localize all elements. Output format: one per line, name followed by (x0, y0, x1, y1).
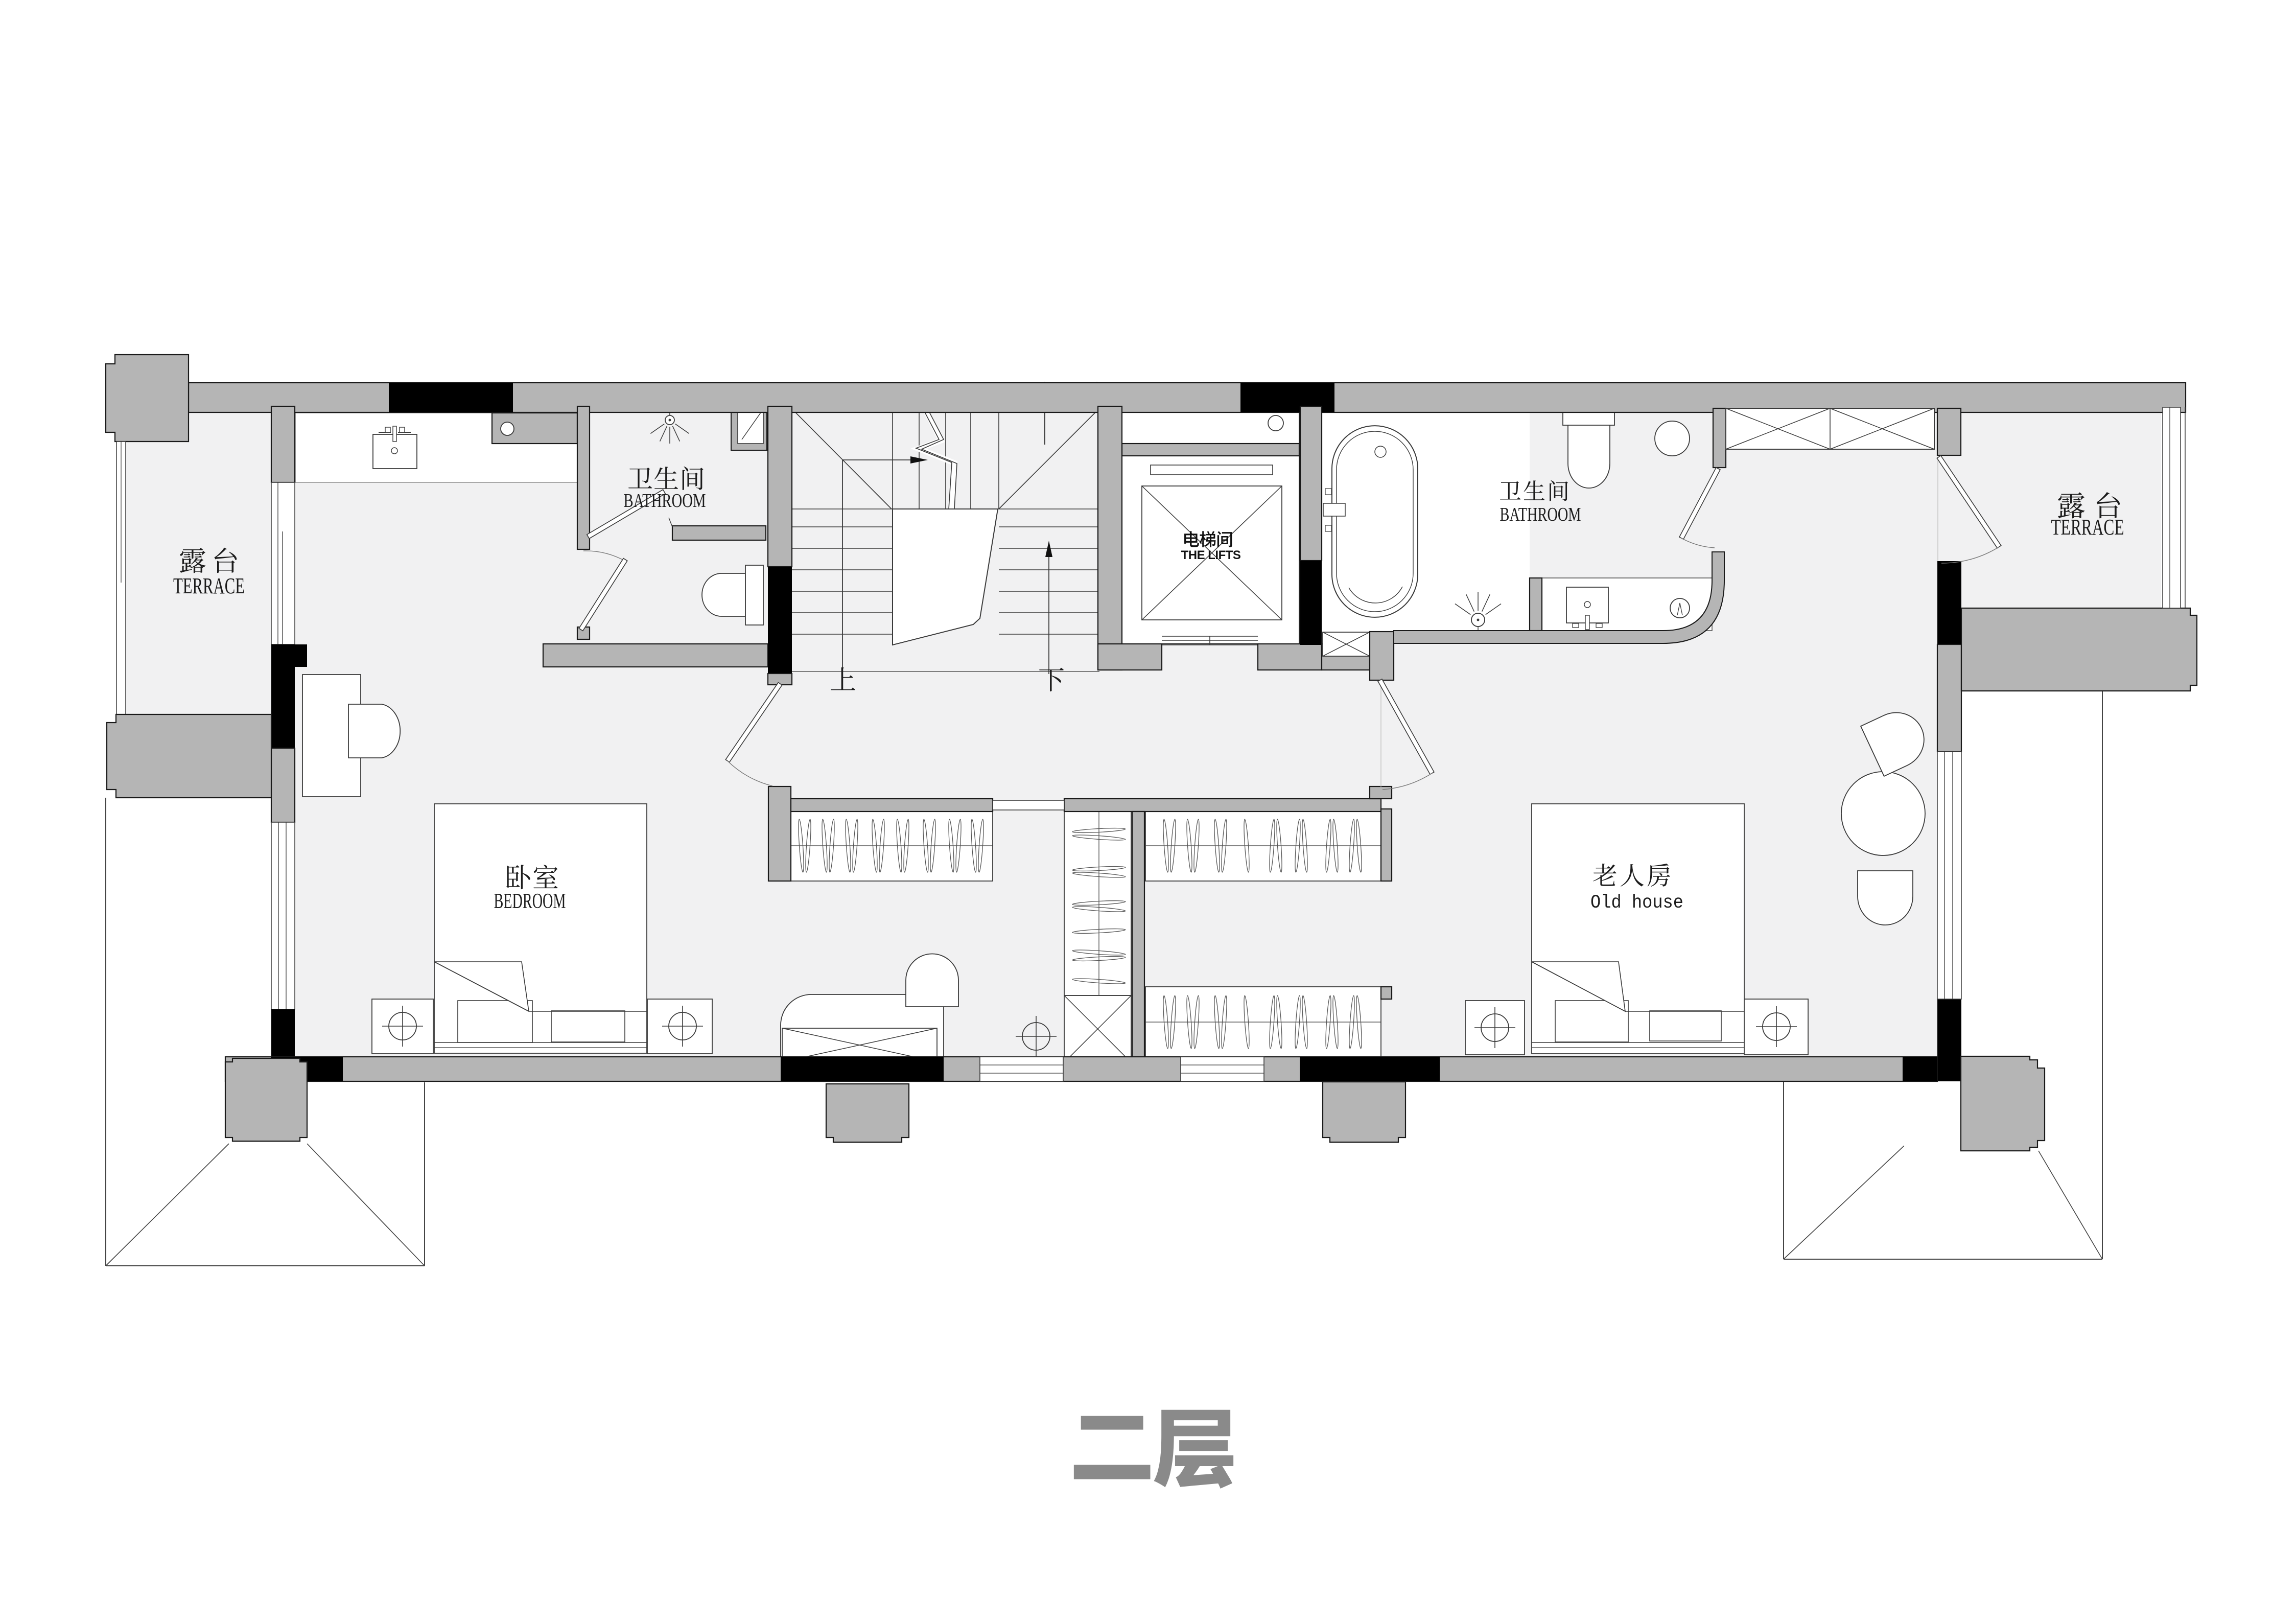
svg-text:TERRACE: TERRACE (2051, 515, 2124, 540)
svg-text:Old house: Old house (1590, 892, 1683, 914)
svg-text:BATHROOM: BATHROOM (1500, 504, 1581, 525)
svg-text:BATHROOM: BATHROOM (624, 490, 706, 512)
svg-text:TERRACE: TERRACE (173, 573, 245, 598)
svg-text:THE LIFTS: THE LIFTS (1181, 548, 1241, 562)
svg-text:BEDROOM: BEDROOM (494, 890, 566, 913)
